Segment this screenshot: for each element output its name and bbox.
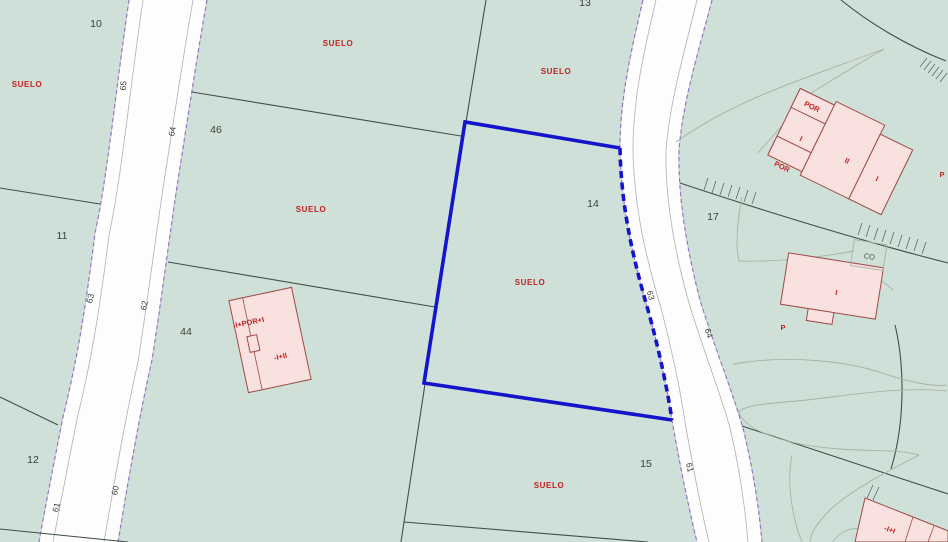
co-label: CO [863,251,876,262]
suelo-label: SUELO [534,481,565,490]
suelo-label: SUELO [515,278,546,287]
parcel-number-label: 17 [707,211,719,223]
parcel-number-label: 12 [27,454,39,466]
cadastral-map-canvas: 10 13 46 11 44 12 14 17 15 SUELO SUELO S… [0,0,948,542]
patio-label: P [780,323,785,332]
patio-label: P [939,170,944,179]
parcel-number-label: 44 [180,326,192,338]
parcel-number-label: 10 [90,18,102,30]
cadastral-map[interactable]: 10 13 46 11 44 12 14 17 15 SUELO SUELO S… [0,0,948,542]
suelo-label: SUELO [323,39,354,48]
street-number-label: 64 [166,126,178,137]
suelo-label: SUELO [296,205,327,214]
suelo-label: SUELO [12,80,43,89]
street-number-label: 65 [117,80,128,91]
parcel-number-label: 13 [579,0,591,9]
parcel-number-label: 11 [57,230,68,242]
parcel-number-label: 15 [640,458,652,470]
parcel-number-label: 46 [210,124,222,136]
suelo-label: SUELO [541,67,572,76]
parcel-number-label: 14 [587,198,599,210]
